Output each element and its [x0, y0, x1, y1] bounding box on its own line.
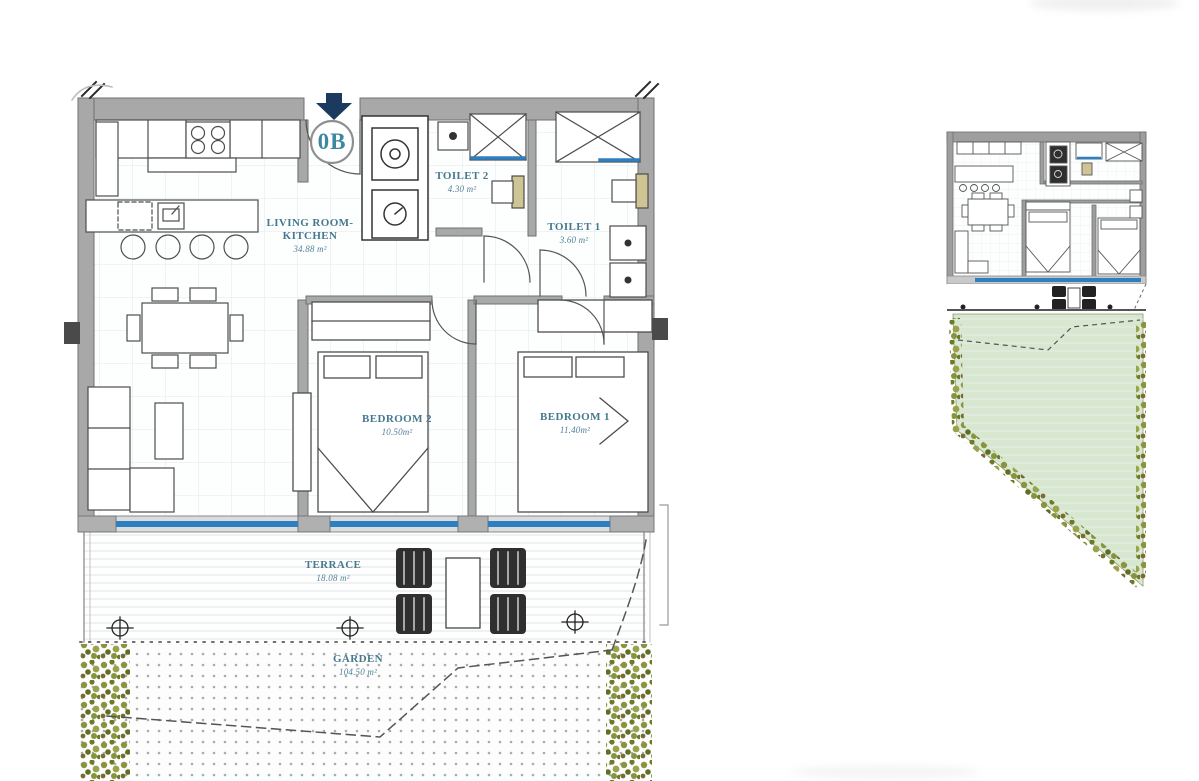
room-name: KITCHEN — [283, 230, 338, 242]
bedroom1-furniture — [518, 300, 652, 512]
corner-hatch-marks — [82, 82, 658, 98]
hob-icon — [186, 122, 230, 158]
room-area: 18.08 m² — [305, 572, 362, 585]
washer-icon — [372, 128, 418, 180]
unit-label: 0B — [318, 129, 347, 155]
room-name: BEDROOM 1 — [540, 411, 610, 423]
floor-plan-drawing — [0, 0, 1199, 781]
floor-plan-page: 0B LIVING ROOM- KITCHEN 34.88 m² TOILET … — [0, 0, 1199, 781]
mini-site-plan — [947, 132, 1146, 586]
window-glass — [488, 521, 610, 527]
sink-icon — [438, 122, 468, 150]
terrace-glazing — [78, 516, 654, 532]
room-label-living: LIVING ROOM- KITCHEN 34.88 m² — [267, 217, 354, 256]
room-area: 3.60 m² — [547, 234, 600, 247]
coffee-table — [155, 403, 183, 459]
room-label-terrace: TERRACE 18.08 m² — [305, 559, 362, 585]
room-area: 104.50 m² — [333, 666, 383, 679]
shower-icon — [556, 112, 640, 162]
dresser — [293, 393, 311, 491]
room-area: 10.50m² — [362, 426, 432, 439]
terrace-floor — [84, 532, 650, 642]
room-name: TERRACE — [305, 559, 362, 571]
garden-plant-border-right — [606, 644, 652, 781]
watermark-smudge — [790, 766, 980, 778]
room-area: 4.30 m² — [435, 183, 488, 196]
room-label-bedroom1: BEDROOM 1 11.40m² — [540, 411, 610, 437]
utility-column — [362, 116, 428, 240]
entrance-arrow-icon — [316, 93, 352, 120]
terrace-table — [446, 558, 480, 628]
room-label-toilet1: TOILET 1 3.60 m² — [547, 221, 600, 247]
room-label-garden: GARDEN 104.50 m² — [333, 653, 383, 679]
mini-terrace — [947, 284, 1146, 310]
wc-icon — [492, 176, 524, 208]
sink-icon — [158, 203, 184, 229]
garden-plant-border-left — [80, 644, 130, 781]
room-name: BEDROOM 2 — [362, 413, 432, 425]
window-glass — [116, 521, 298, 527]
room-name: GARDEN — [333, 653, 383, 665]
room-name: TOILET 1 — [547, 221, 600, 233]
room-label-toilet2: TOILET 2 4.30 m² — [435, 170, 488, 196]
mini-garden — [953, 314, 1143, 586]
room-area: 11.40m² — [540, 424, 610, 437]
shower-icon — [470, 114, 526, 160]
wardrobe — [538, 300, 652, 332]
wall-column-marker — [64, 322, 80, 344]
room-label-bedroom2: BEDROOM 2 10.50m² — [362, 413, 432, 439]
wall-column-marker — [652, 318, 668, 340]
room-name: LIVING ROOM- — [267, 217, 354, 229]
dimension-bracket — [660, 505, 668, 625]
room-area: 34.88 m² — [267, 243, 354, 256]
dishwasher-icon — [118, 202, 152, 230]
sink-icon — [610, 226, 646, 260]
room-name: TOILET 2 — [435, 170, 488, 182]
boiler-icon — [372, 190, 418, 238]
mini-window-glass — [975, 278, 1141, 282]
window-glass — [330, 521, 458, 527]
sink-icon — [610, 263, 646, 297]
